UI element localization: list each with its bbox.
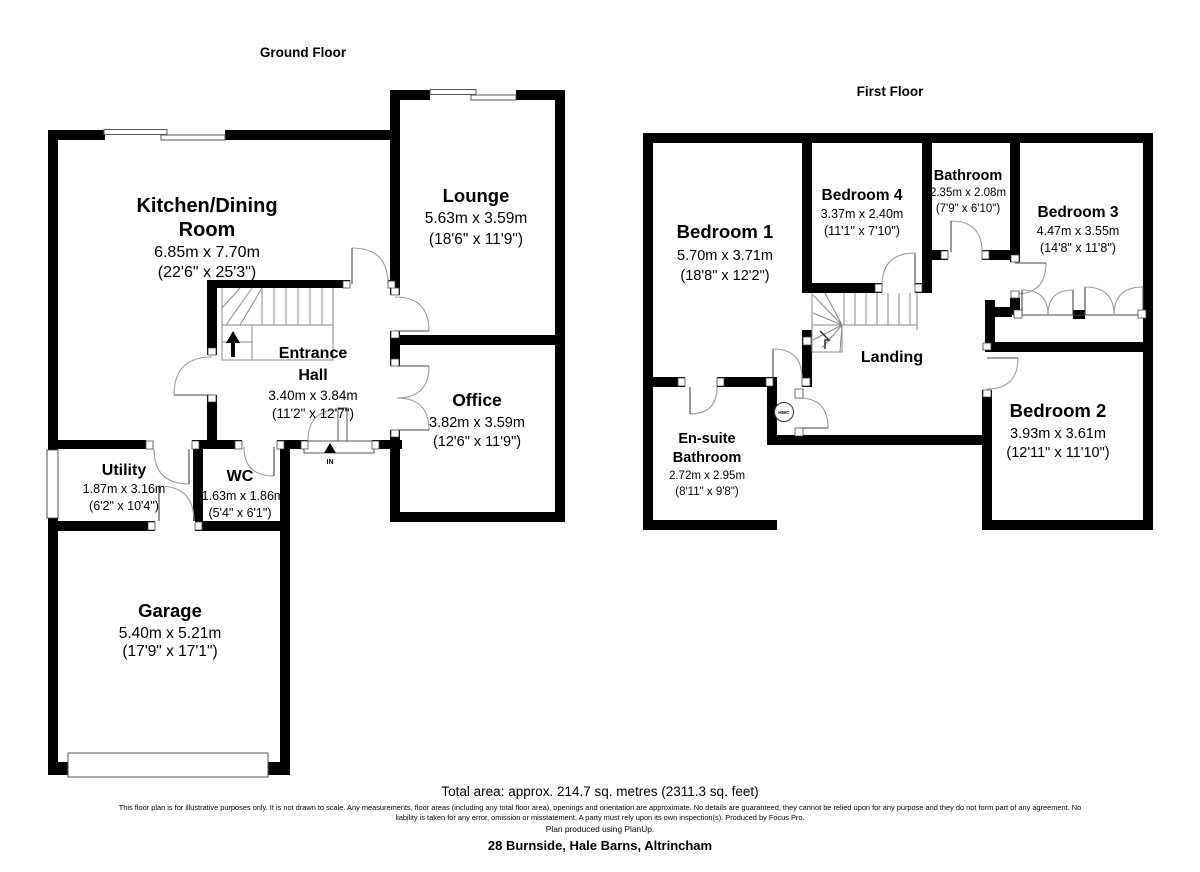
room-dim-imperial: (12'6" x 11'9"): [433, 434, 521, 450]
total-area: Total area: approx. 214.7 sq. metres (23…: [0, 784, 1200, 799]
kitchen-window: [161, 135, 225, 140]
property-address: 28 Burnside, Hale Barns, Altrincham: [0, 838, 1200, 853]
first-stairs: [812, 293, 917, 352]
room-dim-metric: 5.63m x 3.59m: [425, 210, 528, 227]
garage-door: [68, 753, 268, 777]
hwc-label: HWC: [778, 410, 790, 416]
room-dim-imperial: (12'11" x 11'10"): [1006, 445, 1109, 461]
door-hwc-cupboard: [799, 398, 828, 428]
room-dim-imperial: (17'9" x 17'1"): [122, 643, 217, 660]
door-lounge: [395, 297, 429, 331]
stairs-up-arrow-icon: [226, 331, 240, 357]
room-label: Kitchen/Dining: [136, 195, 277, 217]
room-dim-metric: 5.40m x 5.21m: [119, 625, 222, 642]
door-kitchen-hall-side: [174, 357, 212, 395]
utility-window: [47, 450, 58, 518]
room-dim-metric: 3.82m x 3.59m: [429, 415, 525, 431]
room-label: Landing: [861, 349, 923, 366]
room-label: Office: [452, 390, 502, 410]
room-dim-metric: 3.37m x 2.40m: [821, 207, 904, 221]
room-dim-metric: 6.85m x 7.70m: [154, 244, 260, 261]
first-floor: HWC First Floor Bedroom 1 5.70m x 3.71m …: [643, 84, 1153, 530]
room-label: Bathroom: [673, 450, 741, 466]
room-label: Bathroom: [934, 168, 1002, 184]
room-dim-imperial: (11'2" x 12'7"): [272, 406, 354, 421]
floor-plan-page: Ground Floor Kitchen/Dining Room 6.85m x…: [0, 0, 1200, 872]
room-dim-imperial: (8'11" x 9'8"): [675, 486, 739, 498]
footer: Total area: approx. 214.7 sq. metres (23…: [0, 784, 1200, 853]
room-label: Bedroom 4: [822, 187, 903, 204]
room-dim-imperial: (14'8" x 11'8"): [1040, 241, 1116, 255]
ground-floor-title: Ground Floor: [260, 45, 347, 60]
room-dim-imperial: (5'4" x 6'1"): [209, 506, 272, 520]
room-dim-metric: 3.40m x 3.84m: [268, 388, 357, 403]
door-bedroom4: [882, 253, 915, 286]
door-ensuite: [690, 387, 717, 414]
door-kitchen-hall-top: [352, 248, 388, 284]
floor-plan-drawing: Ground Floor Kitchen/Dining Room 6.85m x…: [0, 0, 1200, 872]
door-bedroom3: [1015, 263, 1046, 294]
room-dim-metric: 1.63m x 1.86m: [202, 489, 285, 503]
first-floor-title: First Floor: [857, 84, 924, 99]
room-dim-metric: 5.70m x 3.71m: [677, 248, 773, 264]
room-dim-imperial: (7'9" x 6'10"): [936, 203, 1001, 215]
room-label: Bedroom 3: [1038, 204, 1119, 221]
lounge-window: [430, 90, 476, 95]
room-label: Bedroom 2: [1010, 400, 1107, 421]
disclaimer-text: This floor plan is for illustrative purp…: [108, 803, 1093, 823]
room-dim-metric: 4.47m x 3.55m: [1037, 224, 1120, 238]
room-label: En-suite: [678, 431, 735, 447]
door-bedroom1: [773, 349, 802, 378]
room-dim-imperial: (22'6" x 25'3"): [158, 264, 256, 281]
room-dim-metric: 2.35m x 2.08m: [930, 187, 1006, 199]
room-dim-metric: 2.72m x 2.95m: [669, 470, 745, 482]
room-dim-imperial: (18'8" x 12'2"): [680, 268, 769, 284]
lounge-window: [471, 95, 516, 100]
door-office-double: [397, 366, 429, 430]
room-dim-metric: 3.93m x 3.61m: [1010, 426, 1106, 442]
kitchen-window: [104, 130, 167, 135]
hwc-cylinder: HWC: [775, 403, 794, 422]
room-label: Garage: [138, 600, 202, 621]
software-credit: Plan produced using PlanUp.: [0, 824, 1200, 834]
ground-floor: Ground Floor Kitchen/Dining Room 6.85m x…: [47, 45, 565, 777]
room-dim-imperial: (11'1" x 7'10"): [824, 224, 900, 238]
door-bathroom: [951, 221, 982, 252]
room-label: WC: [227, 468, 254, 485]
room-label: Utility: [102, 462, 147, 479]
room-dim-metric: 1.87m x 3.16m: [83, 482, 166, 496]
room-label: Lounge: [443, 185, 510, 206]
room-label: Entrance: [279, 345, 348, 362]
door-bedroom2: [987, 358, 1018, 389]
room-label: Hall: [298, 367, 327, 384]
room-dim-imperial: (18'6" x 11'9"): [429, 231, 523, 248]
room-label: Room: [179, 219, 236, 241]
entrance-in-label: IN: [327, 459, 334, 466]
room-dim-imperial: (6'2" x 10'4"): [89, 499, 159, 513]
room-label: Bedroom 1: [677, 221, 774, 242]
door-utility: [154, 449, 189, 484]
